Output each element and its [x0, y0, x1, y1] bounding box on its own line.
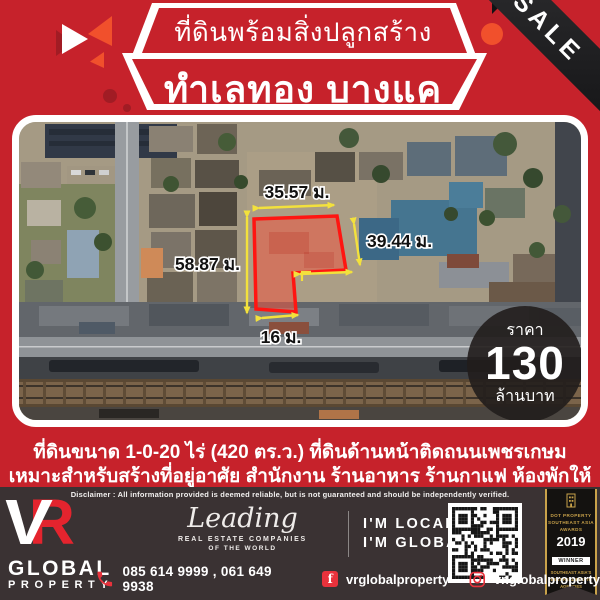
leadingre-script: Leading: [155, 505, 330, 532]
dim-top-label: 35.57 ม.: [264, 182, 329, 202]
dim-left-label: 58.87 ม.: [175, 254, 240, 274]
banner-title: ทำเลทอง บางแค: [130, 60, 476, 119]
footer: Disclaimer : All information provided is…: [0, 487, 600, 600]
disclaimer-text: Disclaimer : All information provided is…: [40, 490, 540, 499]
price-badge: ราคา 130 ล้านบาท: [467, 306, 583, 422]
award-line3: AWARDS: [547, 527, 595, 534]
facebook-icon: f: [322, 571, 338, 587]
award-brand: VR Global Property: [547, 592, 595, 597]
footer-divider: [348, 511, 349, 557]
price-amount: 130: [467, 340, 583, 387]
facebook-handle: vrglobalproperty: [346, 572, 449, 587]
award-line1: DOT PROPERTY: [547, 513, 595, 520]
award-line2: SOUTHEAST ASIA: [547, 520, 595, 527]
leadingre-sub2: OF THE WORLD: [155, 545, 330, 552]
instagram-handle: vr.globalproperty: [494, 572, 600, 587]
satellite-map: 35.57 ม. 39.44 ม. 58.87 ม. 16 ม. ราคา 13…: [12, 115, 588, 427]
leadingre-sub1: REAL ESTATE COMPANIES: [155, 536, 330, 543]
instagram-icon: [469, 571, 486, 588]
contact-row: 085 614 9999 , 061 649 9938 f vrglobalpr…: [95, 567, 600, 591]
leadingre-logo: Leading REAL ESTATE COMPANIES OF THE WOR…: [155, 505, 330, 552]
banner-subtitle: ที่ดินพร้อมสิ่งปลูกสร้าง: [140, 12, 466, 53]
vr-logo-v: V: [1, 494, 53, 552]
phone-numbers: 085 614 9999 , 061 649 9938: [123, 564, 303, 594]
dim-right-label: 39.44 ม.: [367, 231, 432, 251]
dim-bottom-label: 16 ม.: [261, 327, 302, 347]
phone-icon: [95, 569, 115, 589]
award-year: 2019: [547, 534, 595, 550]
vr-logo: VR: [6, 494, 75, 552]
award-building-icon: [563, 493, 579, 508]
price-unit: ล้านบาท: [467, 387, 583, 406]
property-ad-poster: ที่ดินพร้อมสิ่งปลูกสร้าง ทำเลทอง บางแค S…: [0, 0, 600, 600]
award-winner-badge: WINNER: [552, 557, 589, 565]
